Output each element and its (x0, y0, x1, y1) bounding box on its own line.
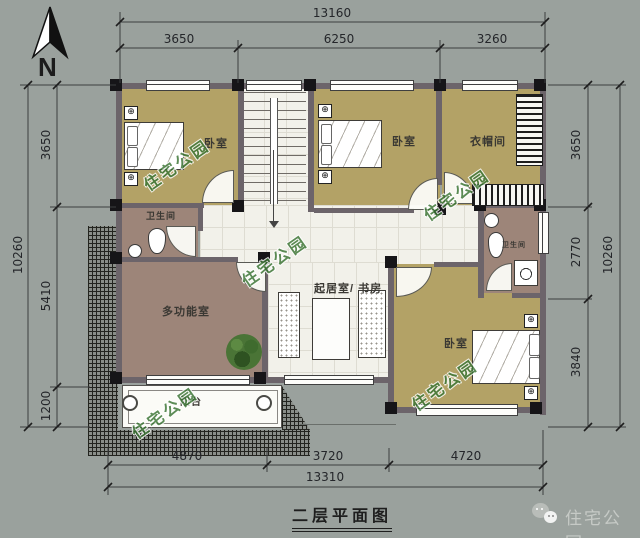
dim-top-seg3: 3260 (452, 32, 532, 46)
wall-bedroom-n-south (314, 208, 414, 213)
stairs-direction-line (273, 150, 274, 222)
window-multi-slider (146, 375, 250, 385)
wall-stair-east (308, 83, 314, 212)
dim-left-total: 10260 (11, 215, 25, 295)
stairs-rail (270, 98, 278, 204)
pillow (127, 126, 138, 146)
wall-bathroom-e-west (478, 203, 484, 298)
dim-bottom-seg3: 4720 (426, 449, 506, 463)
nightstand: ⊕ (124, 172, 138, 186)
dim-top-total: 13160 (292, 6, 372, 20)
pillow (321, 145, 332, 165)
stairs-direction-arrow (269, 221, 279, 228)
room-label-bedroom-n: 卧室 (392, 133, 416, 149)
column (110, 252, 122, 264)
window-living-south (284, 375, 374, 385)
washing-machine-icon (514, 260, 538, 286)
dim-left-seg2: 5410 (39, 256, 53, 336)
room-label-living-study: 起居室/ 书房 (314, 280, 382, 296)
dim-right-total: 10260 (601, 215, 615, 295)
sofa (278, 292, 300, 358)
brand-label: 住宅公园 (565, 504, 640, 538)
north-label: N (38, 52, 57, 83)
column (254, 372, 266, 384)
dim-right-seg3: 3840 (569, 322, 583, 402)
room-label-bathroom-w: 卫生间 (146, 209, 176, 222)
column (110, 199, 122, 211)
room-label-cloakroom: 衣帽间 (470, 133, 506, 149)
dim-right-seg1: 3650 (569, 105, 583, 185)
wardrobe-east (516, 94, 543, 166)
column (530, 402, 542, 414)
nightstand: ⊕ (318, 104, 332, 118)
room-label-multi-function: 多功能室 (162, 303, 210, 319)
column (110, 79, 122, 91)
wall-bathroom-e-south (512, 293, 541, 298)
pillow (127, 147, 138, 167)
balcony-column (122, 395, 138, 411)
wechat-icon (532, 502, 560, 524)
sofa (358, 290, 386, 358)
dim-left-seg3: 1200 (39, 366, 53, 446)
wall-bedroom-nw-south (116, 203, 204, 208)
dim-top-seg2: 6250 (299, 32, 379, 46)
pillow (529, 357, 540, 379)
flat-roof-line (300, 424, 396, 425)
sink-icon (484, 213, 499, 228)
column (434, 79, 446, 91)
dim-top-seg1: 3650 (139, 32, 219, 46)
room-label-bathroom-e: 卫生间 (502, 240, 526, 250)
wall-bathroom-w-east (198, 207, 203, 231)
wall-bedroom-se-north (434, 262, 484, 267)
column (385, 402, 397, 414)
balcony-column (256, 395, 272, 411)
nightstand: ⊕ (524, 314, 538, 328)
pillow (321, 124, 332, 144)
nightstand: ⊕ (318, 170, 332, 184)
sink-icon (128, 244, 142, 258)
nightstand: ⊕ (124, 106, 138, 120)
coffee-table (312, 298, 350, 360)
plan-title: 二层平面图 (292, 502, 392, 532)
pillow (529, 334, 540, 356)
column (304, 79, 316, 91)
window-cloakroom (462, 80, 518, 91)
dim-bottom-seg1: 4870 (147, 449, 227, 463)
column (534, 79, 546, 91)
window-bedroom-nw (146, 80, 210, 91)
column (232, 79, 244, 91)
dim-right-seg2: 2770 (569, 212, 583, 292)
window-bedroom-n (330, 80, 414, 91)
window-stairwell (246, 80, 302, 91)
wall-bedroom-n-east (436, 83, 442, 185)
window-east (538, 212, 549, 254)
plant-icon (226, 334, 262, 370)
dim-left-seg1: 3650 (39, 105, 53, 185)
wall-west (116, 83, 122, 383)
floor-plan-canvas: N (0, 0, 640, 538)
dim-bottom-seg2: 3720 (288, 449, 368, 463)
dim-bottom-total: 13310 (285, 470, 365, 484)
wall-bedroom-se-west (388, 262, 394, 412)
room-label-bedroom-se: 卧室 (444, 335, 468, 351)
column (110, 372, 122, 384)
nightstand: ⊕ (524, 386, 538, 400)
